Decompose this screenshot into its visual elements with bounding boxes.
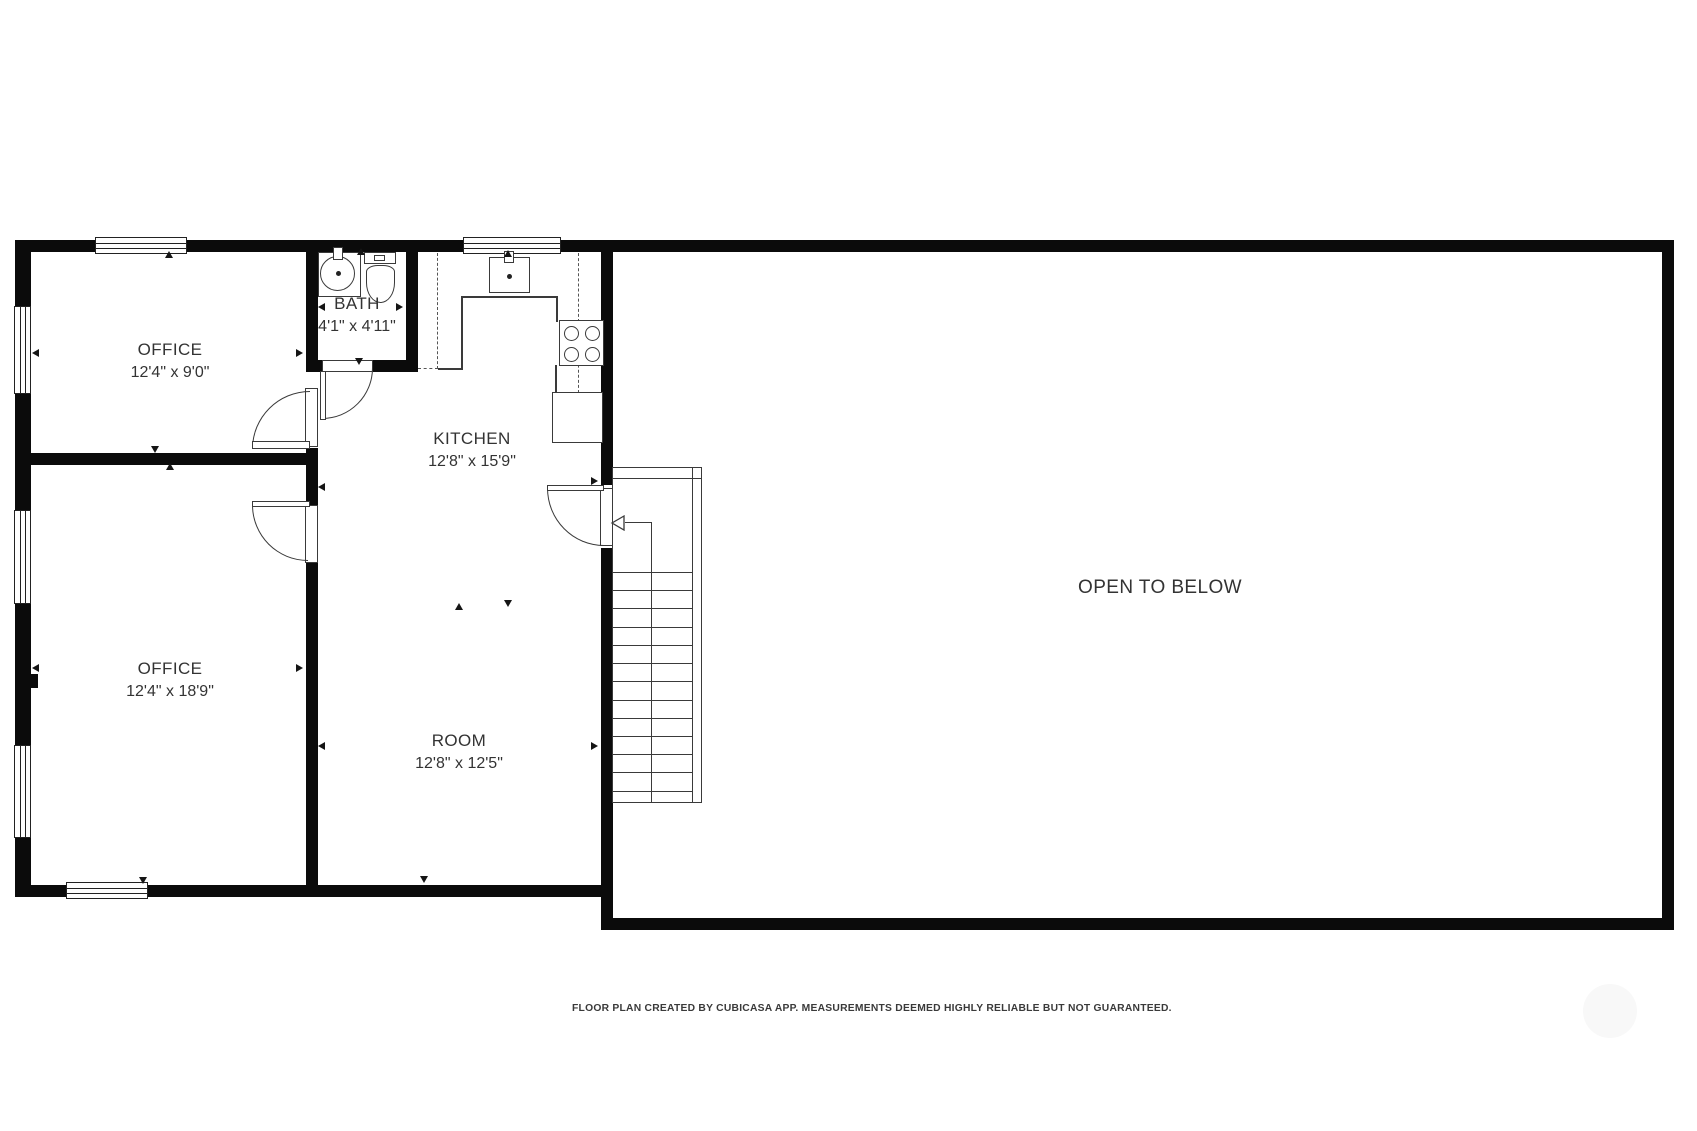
measure-arrow-icon xyxy=(166,463,174,470)
bath-faucet-icon xyxy=(333,247,343,260)
stair-tread xyxy=(612,700,693,701)
wall-exterior-top xyxy=(15,240,1674,252)
room-name: OFFICE xyxy=(126,657,214,680)
stair-tread xyxy=(612,681,693,682)
door-top-office-leaf-open xyxy=(252,441,310,449)
room-label-room: ROOM 12'8" x 12'5" xyxy=(415,729,503,775)
stove-burner-icon xyxy=(585,326,600,341)
room-label-open-to-below: OPEN TO BELOW xyxy=(1078,577,1242,599)
stair-tread xyxy=(612,754,693,755)
watermark-circle xyxy=(1583,984,1637,1038)
door-bottom-office-leaf-open xyxy=(252,501,310,507)
measure-arrow-icon xyxy=(504,250,512,257)
window-bottom-office xyxy=(66,882,148,899)
counter-edge xyxy=(556,297,558,322)
door-stairs-leaf-open xyxy=(547,485,604,491)
room-label-kitchen: KITCHEN 12'8" x 15'9" xyxy=(428,427,516,473)
stair-center-divider xyxy=(651,523,652,803)
upper-cabinet-dashed-line xyxy=(437,253,438,369)
stair-tread xyxy=(612,645,693,646)
staircase-inner-line-right xyxy=(692,467,693,803)
door-bath-leaf-open xyxy=(320,371,326,420)
measure-arrow-icon xyxy=(318,483,325,491)
stove-burner-icon xyxy=(585,347,600,362)
room-name: KITCHEN xyxy=(428,427,516,450)
window-left-office-bottom-2 xyxy=(14,745,31,838)
counter-edge xyxy=(438,368,462,370)
refrigerator-icon xyxy=(552,392,603,443)
stair-tread xyxy=(612,627,693,628)
measure-arrow-icon xyxy=(591,477,598,485)
measure-arrow-icon xyxy=(165,251,173,258)
room-dimensions: 12'4" x 18'9" xyxy=(126,680,214,703)
staircase-box xyxy=(612,467,702,803)
wall-interior-offices-right-upper xyxy=(306,240,318,370)
counter-edge xyxy=(555,365,557,393)
stair-direction-line xyxy=(625,522,652,523)
room-label-office-top: OFFICE 12'4" x 9'0" xyxy=(131,338,210,384)
room-name: ROOM xyxy=(415,729,503,752)
upper-cabinet-dashed-line xyxy=(418,368,438,369)
counter-edge xyxy=(461,297,463,370)
room-name: BATH xyxy=(318,292,396,315)
counter-edge xyxy=(461,296,558,298)
toilet-flush-button-icon xyxy=(374,255,385,261)
stair-tread xyxy=(612,572,693,573)
staircase-inner-line-top xyxy=(612,478,702,479)
door-bottom-office-swing-arc xyxy=(252,505,308,561)
wall-interior-offices-right-middle xyxy=(306,448,318,505)
window-left-office-bottom-1 xyxy=(14,510,31,604)
stair-tread xyxy=(612,791,693,792)
wall-bath-right xyxy=(406,240,418,372)
room-name: OFFICE xyxy=(131,338,210,361)
room-dimensions: 12'8" x 12'5" xyxy=(415,752,503,775)
stove-burner-icon xyxy=(564,326,579,341)
measure-arrow-icon xyxy=(318,742,325,750)
measure-arrow-icon xyxy=(355,358,363,365)
measure-arrow-icon xyxy=(420,876,428,883)
room-dimensions: 12'4" x 9'0" xyxy=(131,361,210,384)
door-stairs-swing-arc xyxy=(547,488,604,546)
measure-arrow-icon xyxy=(504,600,512,607)
measure-arrow-icon xyxy=(357,248,365,255)
door-bath-swing-arc xyxy=(322,368,373,419)
measure-arrow-icon xyxy=(139,877,147,884)
stove-burner-icon xyxy=(564,347,579,362)
room-label-office-bottom: OFFICE 12'4" x 18'9" xyxy=(126,657,214,703)
room-label-bath: BATH 4'1" x 4'11" xyxy=(318,292,396,338)
measure-arrow-icon xyxy=(296,349,303,357)
stair-tread xyxy=(612,663,693,664)
stair-tread xyxy=(612,718,693,719)
measure-arrow-icon xyxy=(396,303,403,311)
measure-arrow-icon xyxy=(32,349,39,357)
measure-arrow-icon xyxy=(455,603,463,610)
measure-arrow-icon xyxy=(296,664,303,672)
room-dimensions: 12'8" x 15'9" xyxy=(428,450,516,473)
wall-interior-offices-right-lower xyxy=(306,562,318,885)
stair-tread xyxy=(612,608,693,609)
wall-exterior-right xyxy=(1662,240,1674,930)
floor-plan-canvas: OFFICE 12'4" x 9'0" BATH 4'1" x 4'11" KI… xyxy=(0,0,1697,1131)
stair-direction-arrow-icon xyxy=(610,515,625,531)
kitchen-sink-drain-icon xyxy=(507,274,512,279)
measure-arrow-icon xyxy=(151,446,159,453)
wall-exterior-bottom-open-area xyxy=(601,918,1674,930)
window-top-office xyxy=(95,237,187,254)
stair-tread xyxy=(612,772,693,773)
stair-tread xyxy=(612,736,693,737)
bath-sink-drain-icon xyxy=(336,271,341,276)
wall-pillar-bump xyxy=(31,674,38,688)
measure-arrow-icon xyxy=(591,742,598,750)
window-left-office-top xyxy=(14,306,31,394)
stair-tread xyxy=(612,590,693,591)
footer-disclaimer: FLOOR PLAN CREATED BY CUBICASA APP. MEAS… xyxy=(572,1003,1172,1014)
measure-arrow-icon xyxy=(32,664,39,672)
room-dimensions: 4'1" x 4'11" xyxy=(318,315,396,338)
